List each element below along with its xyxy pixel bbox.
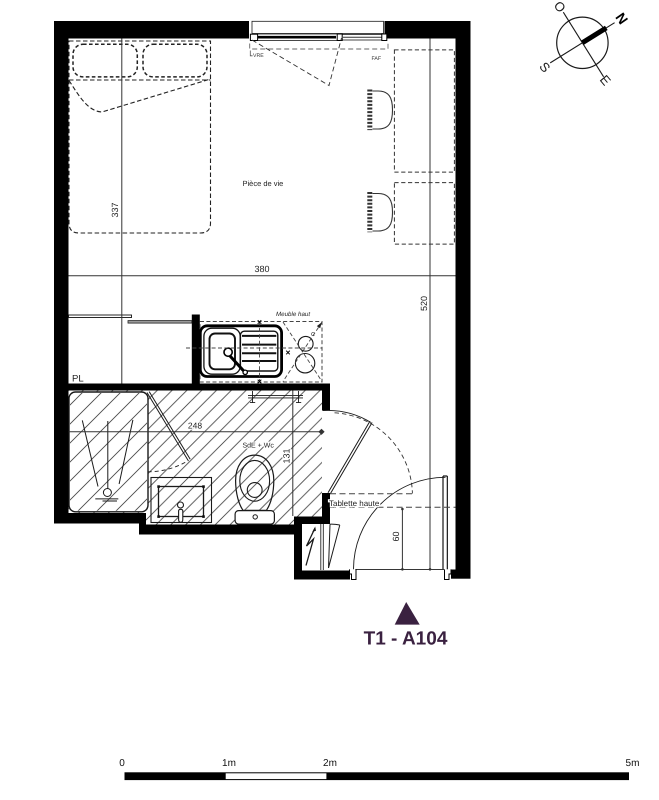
svg-text:380: 380: [254, 264, 269, 274]
svg-text:131: 131: [282, 448, 292, 463]
svg-text:520: 520: [419, 296, 429, 311]
svg-text:248: 248: [188, 421, 202, 431]
svg-text:5m: 5m: [626, 758, 640, 769]
svg-text:FAF: FAF: [372, 56, 382, 62]
svg-text:Pièce de vie: Pièce de vie: [243, 179, 284, 188]
svg-text:Tablette haute: Tablette haute: [329, 499, 380, 508]
svg-text:1m: 1m: [222, 758, 236, 769]
svg-text:60: 60: [391, 531, 401, 541]
svg-text:SdE + Wc: SdE + Wc: [243, 442, 275, 450]
svg-text:2m: 2m: [323, 758, 337, 769]
svg-text:337: 337: [110, 202, 120, 217]
svg-text:VRE: VRE: [253, 53, 264, 59]
svg-text:Meuble haut: Meuble haut: [276, 311, 310, 318]
svg-text:PL: PL: [72, 373, 84, 384]
svg-text:0: 0: [119, 758, 125, 769]
svg-text:T1 - A104: T1 - A104: [364, 629, 448, 650]
svg-text:C: C: [311, 332, 315, 338]
